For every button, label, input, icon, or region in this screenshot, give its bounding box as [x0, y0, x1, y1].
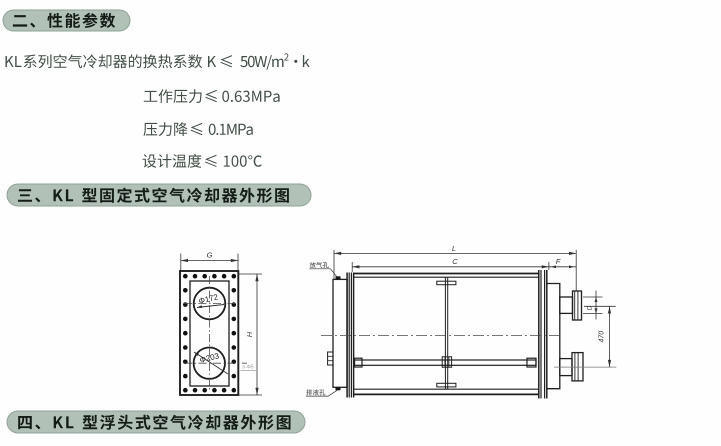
- svg-text:H: H: [245, 331, 254, 337]
- svg-text:L: L: [452, 244, 456, 253]
- svg-text:C: C: [452, 257, 458, 266]
- svg-text:G: G: [207, 251, 213, 260]
- svg-text:n-Φ5: n-Φ5: [242, 365, 253, 371]
- svg-text:470: 470: [599, 331, 606, 343]
- svg-text:F: F: [556, 257, 561, 266]
- svg-text:Φ203: Φ203: [199, 351, 221, 365]
